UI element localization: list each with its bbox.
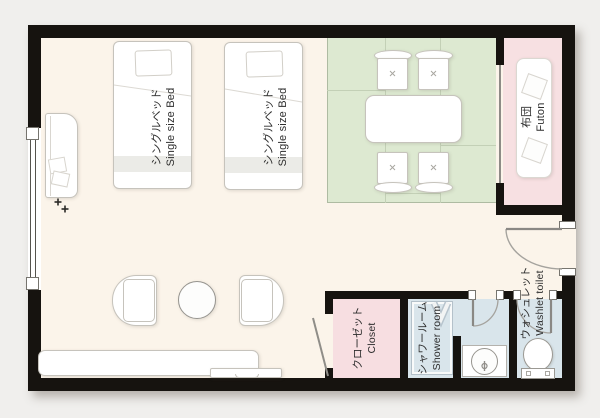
floor-plan: { "floorplan": { "labels": { "bed": { "j… — [0, 0, 600, 418]
dining-chair — [377, 152, 408, 184]
bathroom-door-jamb — [496, 290, 504, 300]
single-bed-1 — [113, 41, 192, 189]
closet-area — [333, 299, 400, 378]
shelf-stool — [235, 374, 259, 378]
shower-sink-wall-stub — [453, 336, 461, 378]
toilet-tank — [521, 368, 555, 379]
bathroom-toilet-wall — [509, 299, 517, 378]
bathroom-door-jamb — [468, 290, 476, 300]
lounge-chair-right-cushion — [241, 279, 273, 322]
futon-stack — [516, 58, 552, 178]
entrance-opening — [561, 229, 576, 268]
round-side-table — [178, 281, 216, 319]
bed-blanket-band — [114, 156, 191, 172]
pillow — [135, 49, 173, 76]
futon-closet-wall-top — [496, 38, 504, 65]
sofa — [45, 113, 78, 198]
chair-backrest — [415, 182, 453, 193]
futon-closet-under-wall — [496, 205, 562, 215]
toilet-door-jamb — [513, 290, 521, 300]
single-bed-2 — [224, 42, 303, 190]
dining-chair — [418, 58, 449, 90]
dining-table — [365, 95, 462, 143]
bed-blanket-band — [225, 157, 302, 173]
window-jamb — [26, 127, 39, 140]
chair-backrest — [374, 182, 412, 193]
dining-chair — [377, 58, 408, 90]
window-glazing-line — [30, 140, 31, 278]
toilet-door-jamb — [549, 290, 557, 300]
toilet-tank-detail — [545, 371, 550, 376]
sofa-pillow — [51, 170, 71, 187]
sanitary-top-wall — [325, 291, 472, 299]
entrance-door-jamb — [559, 221, 576, 229]
futon-cushion — [521, 137, 548, 164]
tatami-mat-line — [327, 90, 385, 91]
tatami-mat-line — [440, 145, 496, 146]
window-glazing-line — [35, 140, 36, 278]
window-jamb — [26, 277, 39, 290]
shower-stall — [412, 302, 452, 374]
closet-left-wall-stub — [325, 291, 333, 314]
entrance-door-jamb — [559, 268, 576, 276]
pillow — [246, 50, 284, 77]
toilet-bowl — [523, 338, 553, 371]
toilet-tank-detail — [526, 371, 531, 376]
futon-closet-wall-bottom — [496, 183, 504, 205]
closet-left-wall-stub — [325, 368, 333, 378]
futon-sliding-door-line — [499, 65, 501, 183]
futon-cushion — [521, 73, 548, 100]
dining-chair — [418, 152, 449, 184]
sink-basin — [471, 348, 498, 375]
closet-shower-wall — [400, 299, 408, 378]
tatami-mat-line — [385, 193, 440, 194]
lounge-chair-left-cushion — [123, 279, 155, 322]
